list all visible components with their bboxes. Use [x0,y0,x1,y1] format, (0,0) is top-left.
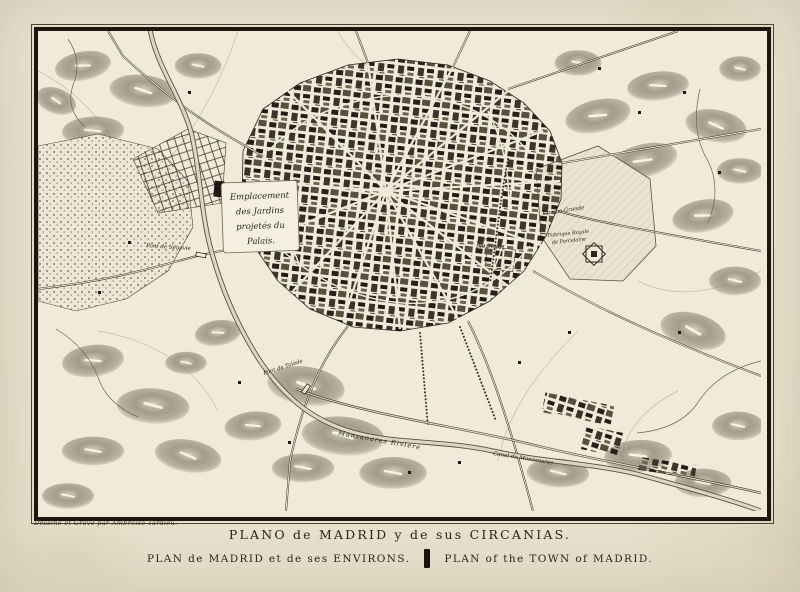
map-subtitle-row: PLAN de MADRID et de ses ENVIRONS. PLAN … [0,550,800,567]
map-engraving: Emplacement des Jardins projetés du Pala… [38,31,761,511]
cartouche-line2: des Jardins [236,206,285,218]
map-title-spanish: PLANO de MADRID y de sus CIRCANIAS. [0,527,800,542]
botanic-label-2: Botanique [475,244,505,250]
engraver-credit: Dessiné et Gravé par Ambroise Tardieu. [34,519,177,527]
star-fort [583,243,606,266]
cartouche-line4: Palais. [246,236,275,247]
paper-sheet: Emplacement des Jardins projetés du Pala… [0,0,800,592]
map-subtitle-english: PLAN of the TOWN of MADRID. [430,553,667,565]
cartouche-line1: Emplacement [229,191,290,203]
cartouche-line3: projetés du [236,220,285,233]
map-subtitle-french: PLAN de MADRID et de ses ENVIRONS. [133,553,424,565]
botanic-label-1: Jardin [477,237,495,243]
cartouche: Emplacement des Jardins projetés du Pala… [221,180,299,253]
